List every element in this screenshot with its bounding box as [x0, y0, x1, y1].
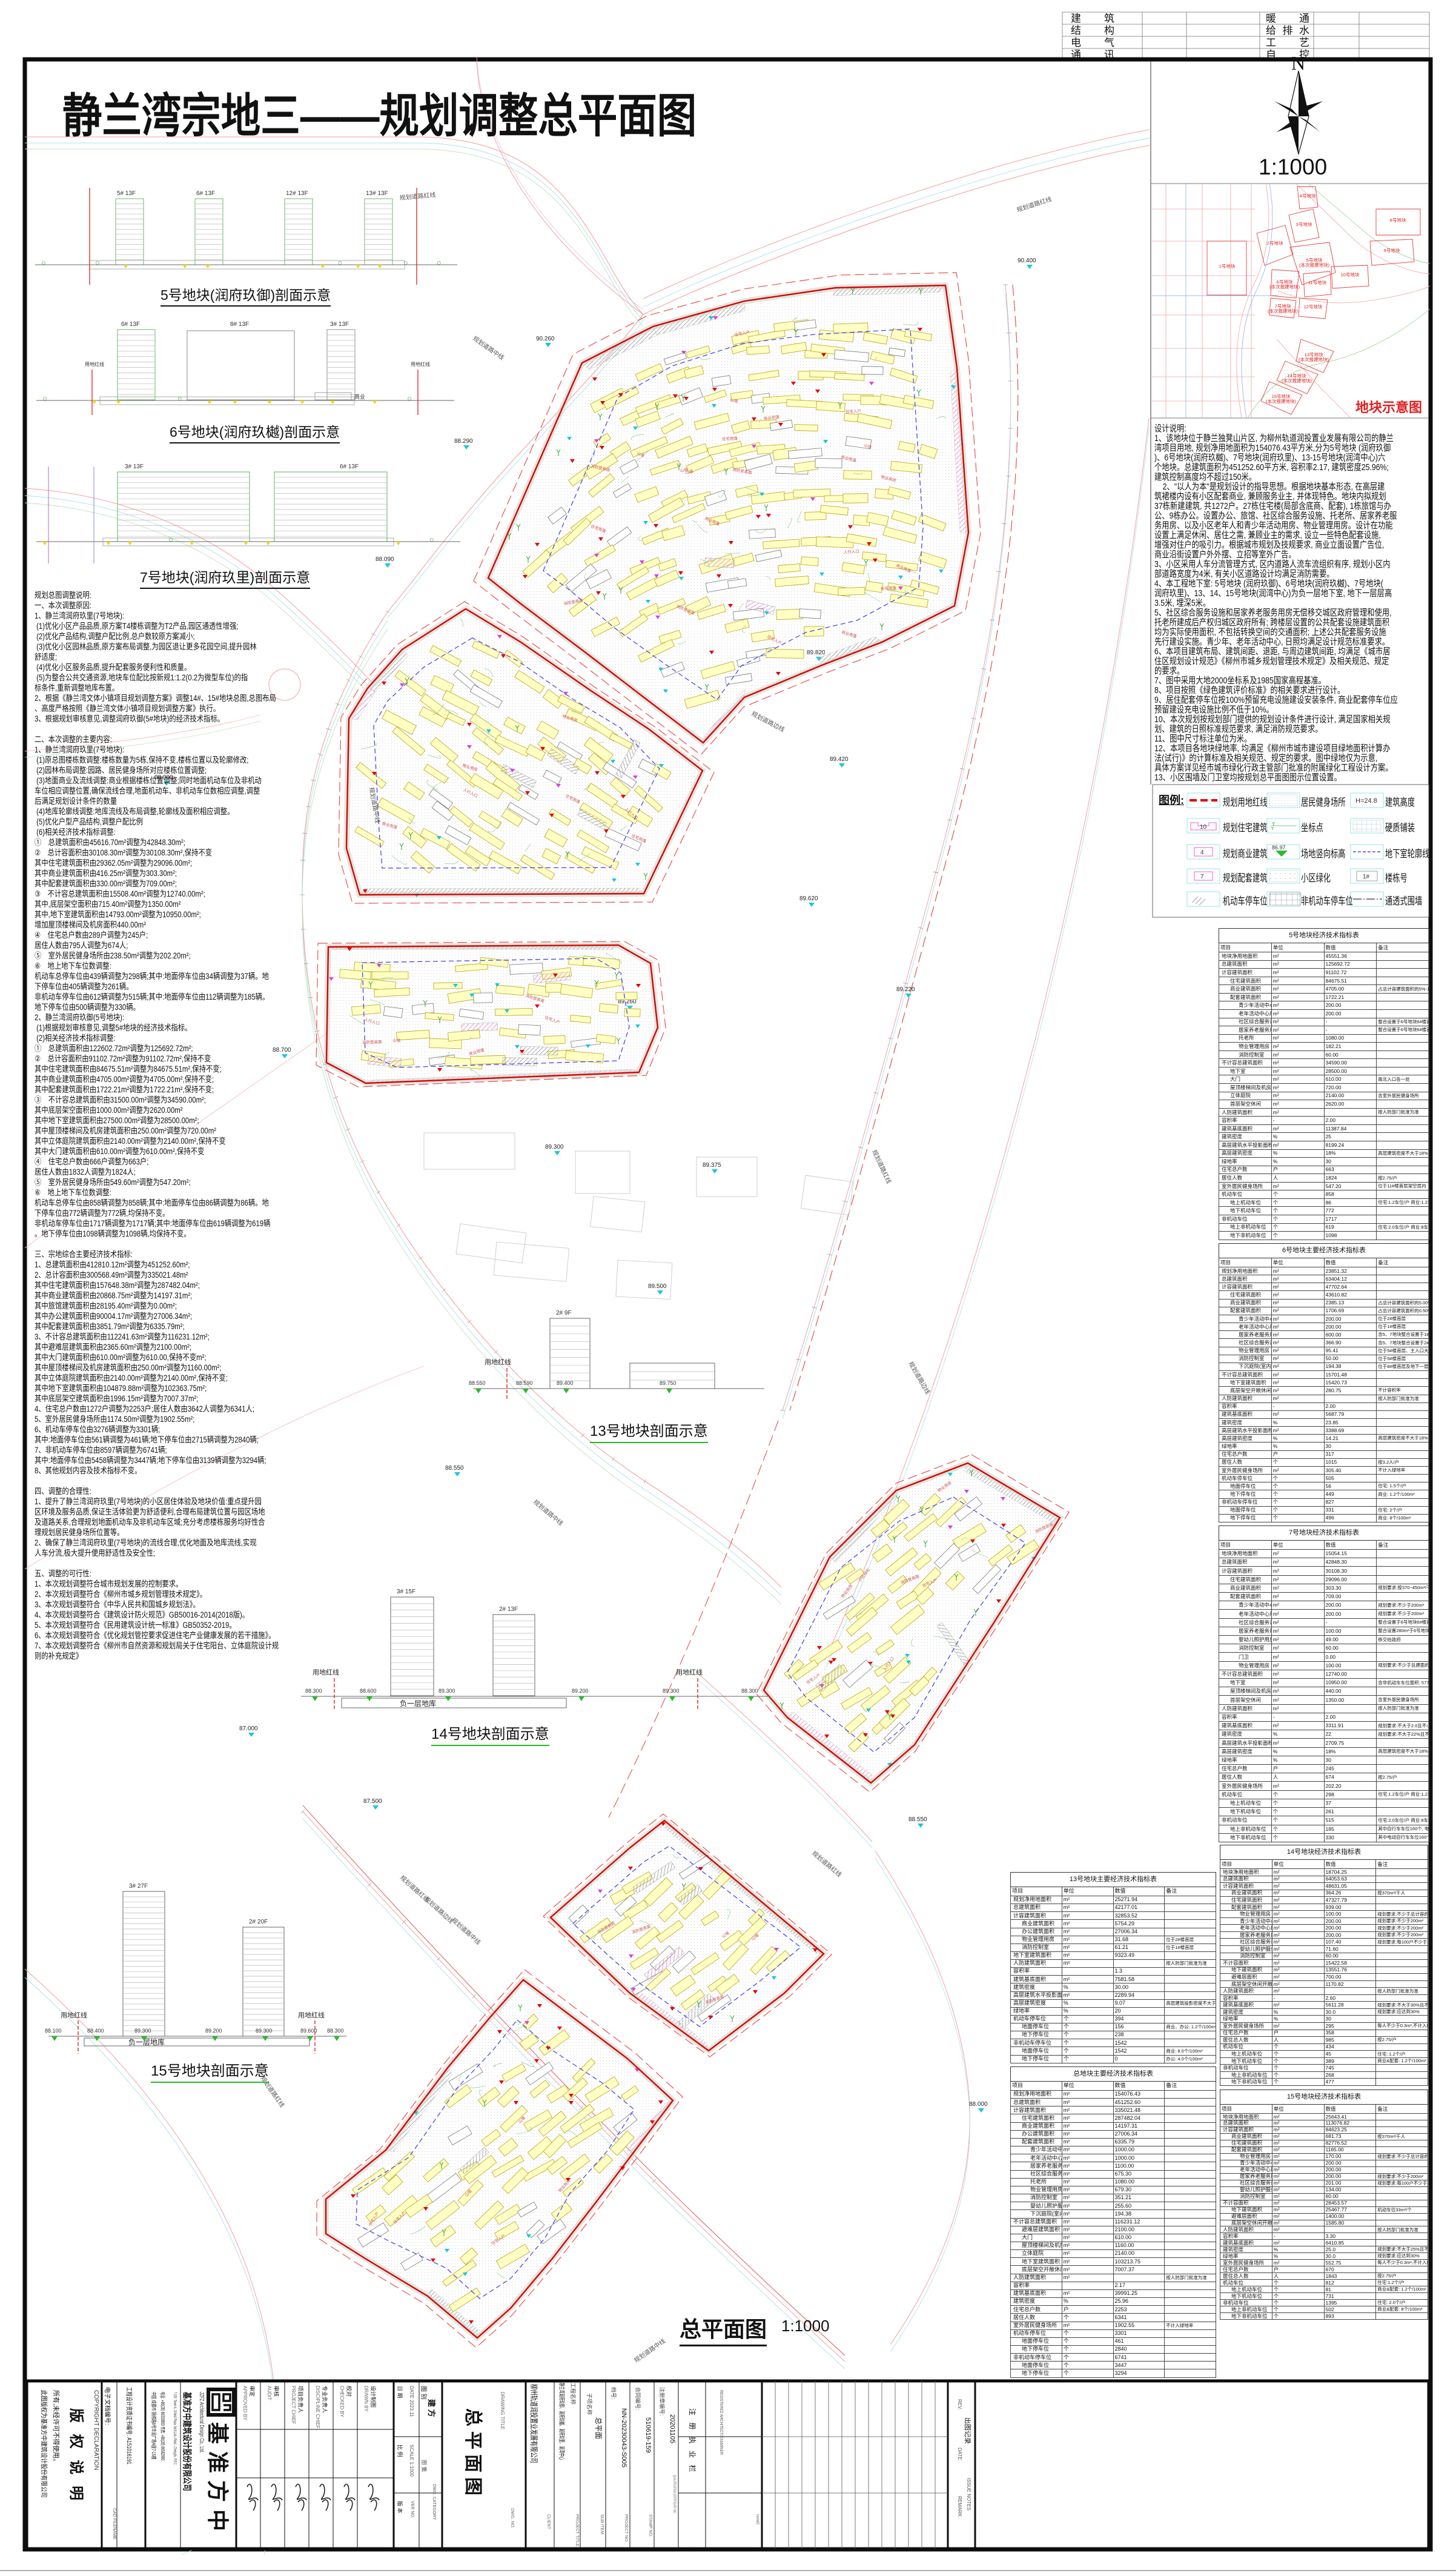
- svg-text:规划道路边线: 规划道路边线: [907, 1360, 932, 1395]
- svg-text:3号地块: 3号地块: [1296, 221, 1312, 227]
- svg-text:4: 4: [1200, 849, 1204, 856]
- svg-text:用地红线: 用地红线: [85, 361, 104, 367]
- svg-text:88.550: 88.550: [469, 1380, 486, 1386]
- svg-text:3# 13F: 3# 13F: [330, 321, 349, 328]
- svg-text:(本次报建地块): (本次报建地块): [1299, 262, 1329, 268]
- svg-text:89.400: 89.400: [557, 1380, 574, 1386]
- svg-text:89.300: 89.300: [438, 1688, 455, 1694]
- svg-text:规划道路中线: 规划道路中线: [632, 2337, 667, 2364]
- svg-text:用地红线: 用地红线: [411, 361, 430, 367]
- svg-text:2# 9F: 2# 9F: [556, 1310, 572, 1316]
- svg-text:87.500: 87.500: [363, 1798, 382, 1805]
- svg-text:(本次报建地块): (本次报建地块): [1282, 377, 1312, 383]
- svg-text:H=24.8: H=24.8: [1355, 797, 1377, 805]
- svg-text:89.200: 89.200: [572, 1688, 589, 1694]
- svg-text:90.400: 90.400: [1018, 257, 1036, 264]
- svg-text:结 构: 结 构: [1071, 25, 1114, 36]
- svg-text:88.600: 88.600: [360, 1688, 377, 1694]
- svg-text:9号地块: 9号地块: [1384, 247, 1400, 253]
- svg-text:2# 13F: 2# 13F: [499, 1606, 518, 1613]
- svg-text:89.300: 89.300: [134, 2028, 151, 2034]
- svg-text:90.260: 90.260: [536, 336, 555, 342]
- svg-text:88.090: 88.090: [376, 556, 394, 563]
- svg-text:用地红线: 用地红线: [313, 1668, 339, 1676]
- svg-text:10: 10: [1200, 824, 1207, 831]
- svg-text:用地红线: 用地红线: [61, 2011, 87, 2019]
- svg-text:工 艺: 工 艺: [1266, 37, 1309, 48]
- svg-text:12号地块: 12号地块: [1304, 304, 1323, 310]
- svg-text:(本次报建地块): (本次报建地块): [1266, 398, 1296, 404]
- svg-text:负一层地库: 负一层地库: [400, 1699, 436, 1708]
- svg-text:(本次报建地块): (本次报建地块): [1269, 284, 1300, 290]
- svg-text:89.220: 89.220: [896, 986, 915, 993]
- svg-text:13# 13F: 13# 13F: [366, 190, 388, 197]
- svg-text:规划道路中线: 规划道路中线: [450, 1916, 482, 1947]
- svg-text:89.300: 89.300: [545, 1144, 564, 1150]
- svg-text:3# 15F: 3# 15F: [397, 1588, 415, 1595]
- svg-text:规划道路中线: 规划道路中线: [532, 1498, 564, 1527]
- svg-text:88.590: 88.590: [516, 1380, 533, 1386]
- svg-text:6# 13F: 6# 13F: [121, 321, 140, 328]
- svg-text:88.000: 88.000: [969, 2101, 988, 2108]
- svg-text:89.620: 89.620: [799, 895, 818, 902]
- svg-text:88.300: 88.300: [327, 2028, 344, 2034]
- svg-text:89.375: 89.375: [703, 1162, 721, 1169]
- svg-text:89.200: 89.200: [205, 2028, 222, 2034]
- svg-text:89.600: 89.600: [300, 2028, 317, 2034]
- svg-text:给排水: 给排水: [1266, 25, 1309, 36]
- svg-text:规划道路中线: 规划道路中线: [471, 334, 506, 362]
- svg-text:4号地块: 4号地块: [1300, 193, 1316, 199]
- svg-text:88.300: 88.300: [305, 1688, 322, 1694]
- svg-text:6# 13F: 6# 13F: [196, 190, 215, 197]
- svg-text:3# 27F: 3# 27F: [129, 1883, 148, 1890]
- svg-text:规划道路红线: 规划道路红线: [810, 1849, 843, 1879]
- svg-text:暖 通: 暖 通: [1266, 13, 1309, 24]
- svg-text:88.550: 88.550: [445, 1465, 464, 1472]
- svg-text:2号地块: 2号地块: [1267, 240, 1283, 246]
- svg-text:8# 13F: 8# 13F: [230, 321, 249, 328]
- svg-text:12# 13F: 12# 13F: [286, 190, 308, 197]
- svg-text:用地红线: 用地红线: [298, 2011, 325, 2019]
- svg-text:规划道路红线: 规划道路红线: [1016, 195, 1053, 214]
- svg-text:86.97: 86.97: [1272, 845, 1286, 851]
- svg-text:6# 13F: 6# 13F: [340, 463, 359, 470]
- svg-text:88.550: 88.550: [908, 1816, 927, 1823]
- svg-text:88.100: 88.100: [45, 2028, 62, 2034]
- svg-text:89.500: 89.500: [648, 1283, 667, 1290]
- svg-text:建 筑: 建 筑: [1071, 13, 1114, 24]
- svg-text:商业: 商业: [354, 393, 365, 400]
- svg-text:88.290: 88.290: [454, 438, 473, 445]
- svg-text:8号地块: 8号地块: [1390, 217, 1406, 223]
- svg-text:(本次报建地块): (本次报建地块): [1299, 356, 1329, 362]
- svg-text:2# 20F: 2# 20F: [249, 1919, 268, 1925]
- svg-text:5# 13F: 5# 13F: [117, 190, 136, 197]
- svg-text:负一层地库: 负一层地库: [128, 2037, 165, 2047]
- svg-text:89.750: 89.750: [660, 1380, 677, 1386]
- svg-text:用地红线: 用地红线: [676, 1668, 703, 1676]
- svg-text:(本次报建地块): (本次报建地块): [1268, 308, 1298, 314]
- svg-text:规划道路红线: 规划道路红线: [870, 1149, 893, 1185]
- svg-text:规划道路边线: 规划道路边线: [423, 1895, 455, 1925]
- svg-text:7: 7: [1200, 874, 1204, 880]
- svg-text:N: N: [1291, 52, 1305, 74]
- svg-text:10号地块: 10号地块: [1341, 271, 1360, 277]
- svg-text:89.300: 89.300: [256, 2028, 273, 2034]
- svg-text:88.300: 88.300: [741, 1688, 758, 1694]
- svg-text:1#: 1#: [1363, 874, 1370, 880]
- svg-text:规划道路边线: 规划道路边线: [750, 709, 786, 734]
- svg-text:1号地块: 1号地块: [1219, 263, 1236, 269]
- svg-text:89.300: 89.300: [663, 1688, 680, 1694]
- svg-text:88.400: 88.400: [87, 2028, 104, 2034]
- svg-text:3# 13F: 3# 13F: [125, 463, 144, 470]
- svg-text:11号地块: 11号地块: [1308, 279, 1327, 285]
- svg-text:87.000: 87.000: [239, 1725, 258, 1732]
- svg-text:电 气: 电 气: [1071, 37, 1114, 48]
- svg-text:规划道路红线: 规划道路红线: [399, 191, 436, 202]
- svg-text:用地红线: 用地红线: [485, 1358, 511, 1366]
- svg-text:89.420: 89.420: [830, 756, 849, 763]
